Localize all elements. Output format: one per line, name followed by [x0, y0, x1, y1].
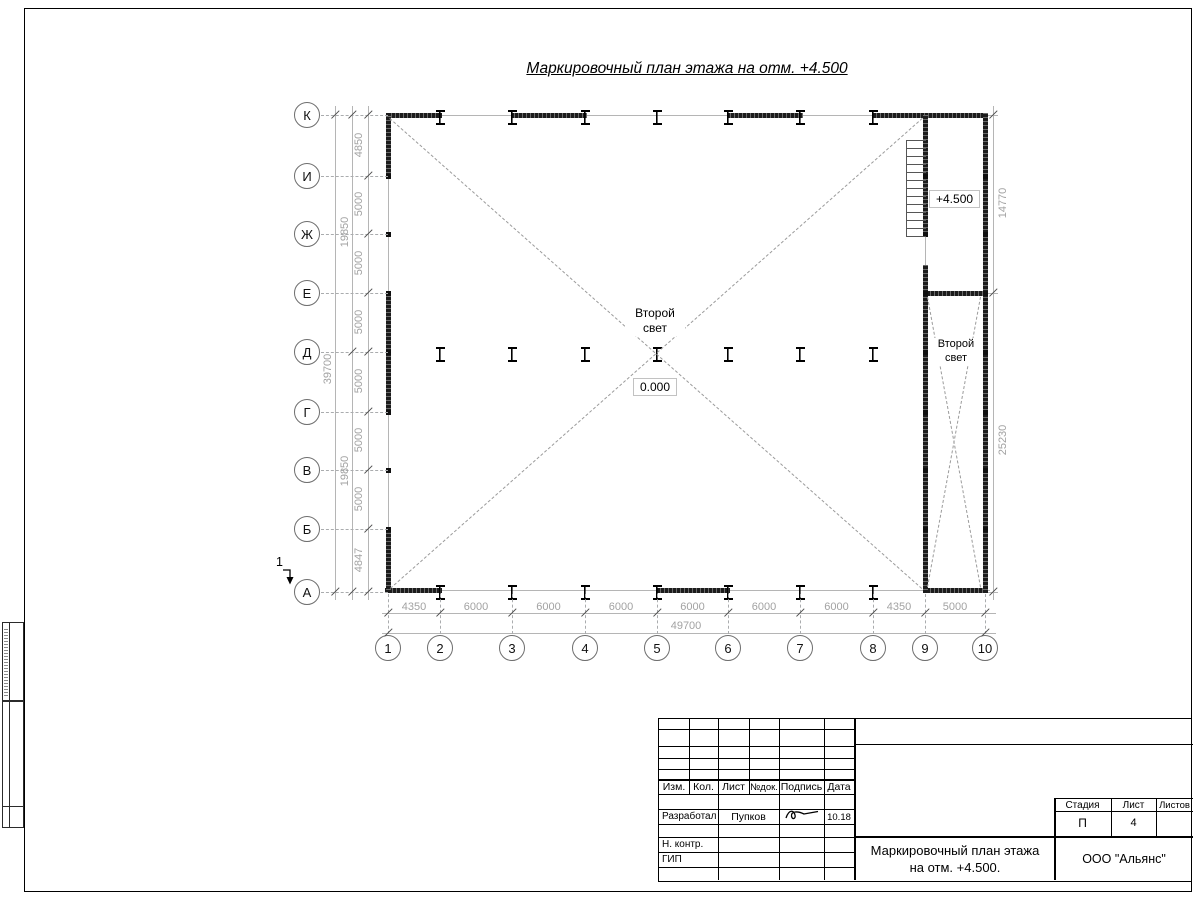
tb-company: ООО "Альянс" [1057, 852, 1191, 866]
dimension-label: 6000 [519, 601, 579, 613]
axis-bubble-row: Д [294, 339, 320, 365]
tb-line [659, 824, 854, 825]
grid-line [382, 613, 996, 614]
tb-developer-name: Пупков [718, 811, 779, 823]
tb-col-izm: Изм. [659, 781, 689, 793]
grid-line [993, 106, 994, 600]
column-marker [508, 347, 517, 362]
wall [727, 113, 803, 118]
tb-line [659, 746, 854, 747]
axis-bubble-col: 8 [860, 635, 886, 661]
column-marker [436, 110, 445, 125]
column-marker [983, 410, 988, 415]
tb-line [659, 809, 854, 810]
dimension-label: 6000 [591, 601, 651, 613]
wall [511, 113, 587, 118]
grid-line [335, 106, 336, 600]
column-marker [983, 350, 988, 355]
tb-col-data: Дата [824, 781, 854, 793]
tb-line [659, 769, 854, 770]
column-marker [724, 347, 733, 362]
dimension-label: 4847 [353, 535, 365, 585]
tb-line [659, 729, 854, 730]
wall [385, 588, 442, 593]
tb-line [718, 719, 719, 880]
tb-stage-value: П [1054, 816, 1111, 830]
column-marker [923, 468, 928, 473]
axis-bubble-row: Ж [294, 221, 320, 247]
tb-sheet-label: Лист [1111, 800, 1156, 811]
tb-line [824, 719, 825, 880]
grid-line [382, 633, 996, 634]
column-marker [436, 347, 445, 362]
axis-leader [321, 412, 388, 413]
tb-role-developed: Разработал [662, 811, 716, 822]
axis-bubble-col: 10 [972, 635, 998, 661]
elevation-mark-0000: 0.000 [633, 378, 677, 396]
signature-icon [781, 807, 822, 823]
tb-line [659, 758, 854, 759]
column-marker [923, 410, 928, 415]
column-marker [923, 527, 928, 532]
axis-bubble-col: 4 [572, 635, 598, 661]
tb-doc-title-line2: на отм. +4.500. [859, 860, 1051, 875]
wall [923, 291, 988, 296]
axis-leader [321, 234, 388, 235]
dimension-label: 6000 [807, 601, 867, 613]
dimension-label: 6000 [446, 601, 506, 613]
title-block: Изм. Кол. Лист №док. Подпись Дата Разраб… [658, 718, 1192, 882]
column-marker [581, 347, 590, 362]
dimension-label: 5000 [353, 238, 365, 288]
axis-bubble-row: К [294, 102, 320, 128]
tb-col-list: Лист [718, 781, 749, 793]
dimension-label: 14770 [997, 173, 1009, 233]
axis-bubble-col: 6 [715, 635, 741, 661]
wall [873, 113, 988, 118]
tb-doc-title-line1: Маркировочный план этажа [859, 843, 1051, 858]
column-marker [923, 291, 928, 296]
axis-leader [321, 470, 388, 471]
dimension-label: 5000 [353, 415, 365, 465]
axis-leader [321, 529, 388, 530]
dimension-label: 5000 [353, 179, 365, 229]
axis-leader [321, 293, 388, 294]
dimension-label: 5000 [353, 297, 365, 347]
wall [923, 265, 928, 593]
dimension-label: 4350 [869, 601, 929, 613]
column-marker [869, 347, 878, 362]
dimension-label: 6000 [734, 601, 794, 613]
column-marker [923, 350, 928, 355]
column-marker [581, 110, 590, 125]
axis-bubble-row: Е [294, 280, 320, 306]
dimension-label: 5000 [353, 474, 365, 524]
elevation-mark-4500: +4.500 [929, 190, 980, 208]
axis-bubble-col: 2 [427, 635, 453, 661]
wall [386, 113, 391, 176]
wall [657, 588, 730, 593]
column-marker [508, 110, 517, 125]
dimension-label: 25230 [997, 410, 1009, 470]
dimension-label: 5000 [353, 356, 365, 406]
axis-leader [321, 592, 388, 593]
axis-bubble-col: 7 [787, 635, 813, 661]
tb-line [854, 836, 1193, 838]
section-arrow-icon [280, 560, 300, 590]
axis-bubble-col: 5 [644, 635, 670, 661]
dimension-label: 49700 [651, 620, 721, 632]
tb-developer-date: 10.18 [824, 812, 854, 823]
column-marker [983, 174, 988, 179]
tb-line [779, 719, 780, 880]
dimension-label: 39700 [322, 339, 334, 399]
tb-col-kol: Кол. [689, 781, 718, 793]
tb-sheets-label: Листов [1156, 800, 1193, 811]
column-marker [796, 347, 805, 362]
column-marker [983, 527, 988, 532]
axis-bubble-row: В [294, 457, 320, 483]
tb-stage-label: Стадия [1054, 800, 1111, 811]
axis-bubble-col: 1 [375, 635, 401, 661]
axis-leader [321, 115, 388, 116]
dimension-label: 4350 [384, 601, 444, 613]
tb-line [1054, 811, 1193, 812]
tb-sheet-value: 4 [1111, 817, 1156, 829]
column-marker [983, 232, 988, 237]
axis-bubble-col: 3 [499, 635, 525, 661]
second-light-label-wing: Второй свет [932, 338, 980, 366]
column-marker [983, 291, 988, 296]
axis-bubble-row: И [294, 163, 320, 189]
tb-line [854, 744, 1193, 745]
column-marker [796, 110, 805, 125]
column-marker [653, 110, 662, 125]
tb-col-dok: №док. [749, 782, 779, 793]
tb-col-podpis: Подпись [779, 781, 824, 793]
dimension-label: 6000 [663, 601, 723, 613]
column-marker [869, 110, 878, 125]
dimension-label: 5000 [925, 601, 985, 613]
wall [386, 529, 391, 593]
column-marker [983, 468, 988, 473]
stair-icon [906, 140, 926, 237]
tb-line [659, 852, 854, 853]
dimension-label: 4850 [353, 120, 365, 170]
axis-leader [321, 176, 388, 177]
dimension-label: 19850 [339, 202, 351, 262]
axis-bubble-row: Г [294, 399, 320, 425]
axis-bubble-row: Б [294, 516, 320, 542]
tb-line [659, 867, 854, 868]
tb-role-gip: ГИП [662, 854, 682, 865]
tb-line [659, 837, 854, 838]
wall [388, 113, 442, 118]
column-marker [724, 110, 733, 125]
dimension-label: 19850 [339, 441, 351, 501]
second-light-label-main: Второй свет [625, 306, 685, 336]
wall [923, 588, 988, 593]
tb-role-norm: Н. контр. [662, 839, 703, 850]
axis-bubble-col: 9 [912, 635, 938, 661]
tb-line [659, 794, 854, 795]
